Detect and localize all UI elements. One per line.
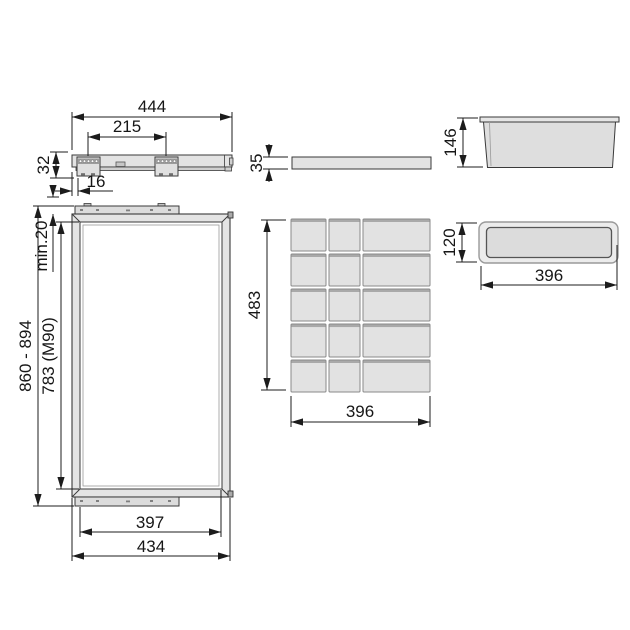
dim-label-frame-clearance: min.20 <box>32 220 51 271</box>
grid-cell <box>291 289 326 321</box>
grid-cell <box>291 219 326 251</box>
slide-rail-end-nub <box>230 158 234 165</box>
frame-tab-bottom <box>228 491 233 497</box>
tray-body <box>484 122 616 168</box>
technical-drawing-canvas: 444 215 32 16 35 146 <box>0 0 630 630</box>
grid-cell <box>291 360 326 392</box>
dim-label-frame-total-height: 860 - 894 <box>16 320 35 392</box>
grid-cell <box>363 219 430 251</box>
grid-cell <box>363 324 430 357</box>
grid-cell <box>329 324 360 357</box>
frame-inner-opening <box>80 222 222 489</box>
dim-tray-top-height: 120 <box>440 223 477 262</box>
grid-cell <box>363 360 430 392</box>
grid-cell <box>291 324 326 357</box>
grid-cell <box>329 254 360 286</box>
dim-label-slide-length: 444 <box>138 97 166 116</box>
base-panel <box>292 157 431 169</box>
base-panel-side-view <box>292 157 431 169</box>
dim-label-frame-inner-height: 783 (M90) <box>39 317 58 394</box>
grid-cell <box>329 289 360 321</box>
dim-tray-height: 146 <box>441 118 483 167</box>
tray-side-view <box>480 117 619 168</box>
dim-label-frame-inner-width: 397 <box>136 513 164 532</box>
dim-label-slide-height: 32 <box>34 156 53 175</box>
drawing-svg: 444 215 32 16 35 146 <box>0 0 630 630</box>
divider-grid-top-view <box>291 219 430 392</box>
grid-cell <box>329 360 360 392</box>
tray-inner-cavity <box>487 228 612 258</box>
frame-front-view <box>72 204 233 507</box>
dim-grid-width: 396 <box>291 396 430 427</box>
dim-label-tray-height: 146 <box>441 128 460 156</box>
dim-bracket-spacing: 215 <box>88 117 166 156</box>
dim-frame-clearance: min.20 <box>32 185 59 272</box>
grid-cell <box>363 254 430 286</box>
grid-cell <box>291 254 326 286</box>
dim-label-bracket-spacing: 215 <box>113 117 141 136</box>
dim-label-front-offset: 16 <box>87 172 106 191</box>
dim-label-grid-width: 396 <box>346 402 374 421</box>
dim-label-panel-thickness: 35 <box>247 154 266 173</box>
mounting-bracket-right <box>155 157 178 176</box>
dim-label-grid-depth: 483 <box>245 291 264 319</box>
grid-cell <box>329 219 360 251</box>
tray-top-view <box>479 222 618 263</box>
slide-rail-center-clip <box>116 162 125 167</box>
dim-label-tray-top-width: 396 <box>535 266 563 285</box>
dim-grid-depth: 483 <box>245 220 286 390</box>
grid-cell <box>363 289 430 321</box>
dim-panel-thickness: 35 <box>247 144 288 182</box>
frame-tab-top <box>228 212 233 218</box>
dim-label-tray-top-height: 120 <box>440 228 459 256</box>
dim-slide-length: 444 <box>72 97 232 152</box>
dim-label-frame-outer-width: 434 <box>137 537 165 556</box>
dim-slide-height: 32 <box>34 152 74 178</box>
slide-rail-end-stop <box>225 167 232 171</box>
tray-rim <box>480 117 619 122</box>
